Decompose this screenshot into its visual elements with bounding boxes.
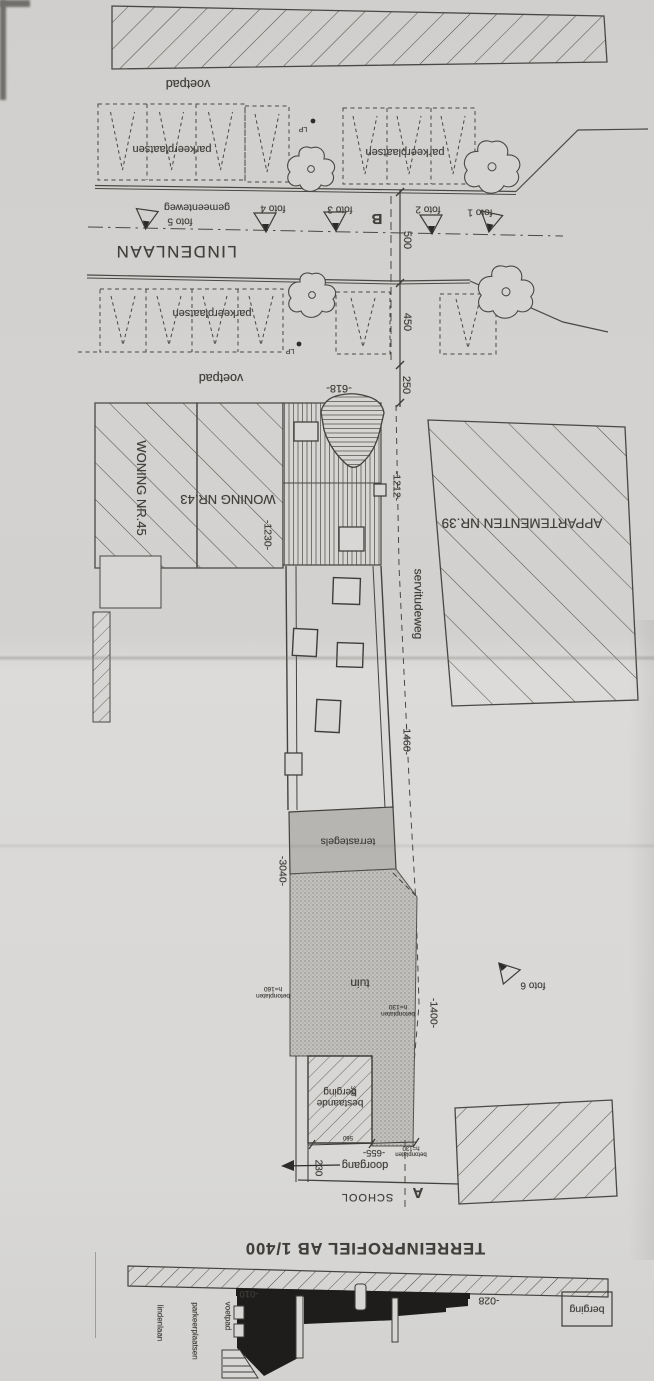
parking-south [78, 289, 496, 354]
betonplaten-130b-note: betonplaten h=130 [395, 1144, 426, 1157]
lamp-post-label: LP [299, 124, 308, 132]
school-hatch [455, 1100, 617, 1204]
voetpad-north-label: voetpad [166, 76, 210, 90]
woning45-label: WONING NR.45 [134, 440, 148, 535]
lamp-post-label: LP [286, 346, 295, 354]
dim-450-label: 450 [400, 313, 412, 331]
dim-618-label: -618- [326, 381, 352, 393]
dim-3040-label: -3040- [276, 856, 287, 886]
dim-655-label: -655- [363, 1147, 385, 1157]
left-strip-hatch [93, 612, 110, 722]
foto1-label: foto 1 [467, 206, 492, 217]
section-b-label: B [372, 210, 383, 226]
school-label: SCHOOL [341, 1190, 393, 1202]
lamp-post-dot-1 [311, 119, 316, 124]
paper-edge-shadow [628, 620, 654, 1260]
parkeerplaatsen-label: parkeerplaatsen [173, 306, 252, 318]
dim-230-label: 230 [312, 1160, 323, 1177]
tree-icon [288, 147, 335, 191]
dim-1212-label: -1212- [390, 471, 401, 501]
dim-250-label: 250 [399, 376, 411, 394]
parkeerplaatsen-label: parkeerplaatsen [133, 142, 212, 154]
profile-silhouette [236, 1288, 470, 1376]
doorgang-label: doorgang [342, 1158, 389, 1170]
foto-marker-icon [324, 212, 346, 231]
foto2-label: foto 2 [415, 203, 440, 214]
tree-icon [464, 141, 520, 193]
photo-background-corner [0, 0, 6, 100]
woning43-label: WONING NR.43 [180, 492, 275, 506]
foto-marker-icon [491, 955, 520, 984]
betonplaten-130-note: betonplaten h=130 [381, 1003, 415, 1017]
dim-1460-label: -1460- [400, 725, 411, 755]
doorgang-arrow [281, 1160, 340, 1171]
paper-fold-shadow [0, 843, 654, 849]
scanned-site-plan-sheet: voetpad parkeerplaatsen parkeerplaatsen … [0, 0, 654, 1381]
dim-560-label: 560 [343, 1134, 353, 1140]
foto4-label: foto 4 [260, 202, 285, 213]
bestaande-berging-label: bestaande berging [317, 1085, 364, 1107]
foto-marker-icon [254, 213, 276, 232]
profile-berging-label: berging [569, 1303, 604, 1314]
appartementen39-hatch [428, 420, 638, 706]
paper-left-edge [95, 1252, 96, 1338]
profile-voetpad-label: voetpad [223, 1302, 232, 1330]
dim-1400-label: -1400- [427, 998, 438, 1028]
dim-500-label: 500 [400, 231, 412, 249]
foto5-label: foto 5 [167, 215, 192, 226]
tuin-label: tuin [350, 977, 369, 990]
school-line [298, 1180, 459, 1184]
voetpad-south-label: voetpad [199, 370, 243, 384]
dim-300-label: 300 [349, 1086, 355, 1096]
measure-line [396, 188, 404, 407]
level-010-label: -010 [239, 1288, 258, 1298]
foto-marker-icon [134, 209, 158, 231]
woning45-notch [100, 556, 161, 608]
street-name-label: LINDENLAAN [115, 242, 237, 260]
foto3-label: foto 3 [327, 203, 352, 214]
tree-icon [478, 266, 534, 318]
section-a-label: A [413, 1184, 424, 1200]
foto-marker-icon [420, 215, 442, 234]
profile-parkeerplaatsen-label: parkeerplaatsen [190, 1302, 199, 1359]
parkeerplaatsen-label: parkeerplaatsen [366, 145, 445, 157]
profile-lindenlaan-label: lindenlaan [155, 1305, 164, 1341]
sheet-title: TERREINPROFIEL AB 1/400 [245, 1238, 485, 1256]
appartementen39-label: APPARTEMENTEN NR.39 [442, 515, 603, 530]
servitudeweg-label: servitudeweg [412, 569, 425, 640]
gemeenteweg-label: gemeenteweg [164, 201, 230, 212]
level-028-label: -028 [478, 1294, 499, 1305]
paper-fold-shadow [0, 655, 654, 661]
north-band-hatch [112, 6, 607, 69]
foto6-label: foto 6 [520, 979, 545, 990]
betonplaten-160-note: betonplaten h=160 [256, 985, 290, 999]
dim-1230-label: -1230- [261, 520, 272, 550]
lamp-post-dot-2 [297, 342, 302, 347]
